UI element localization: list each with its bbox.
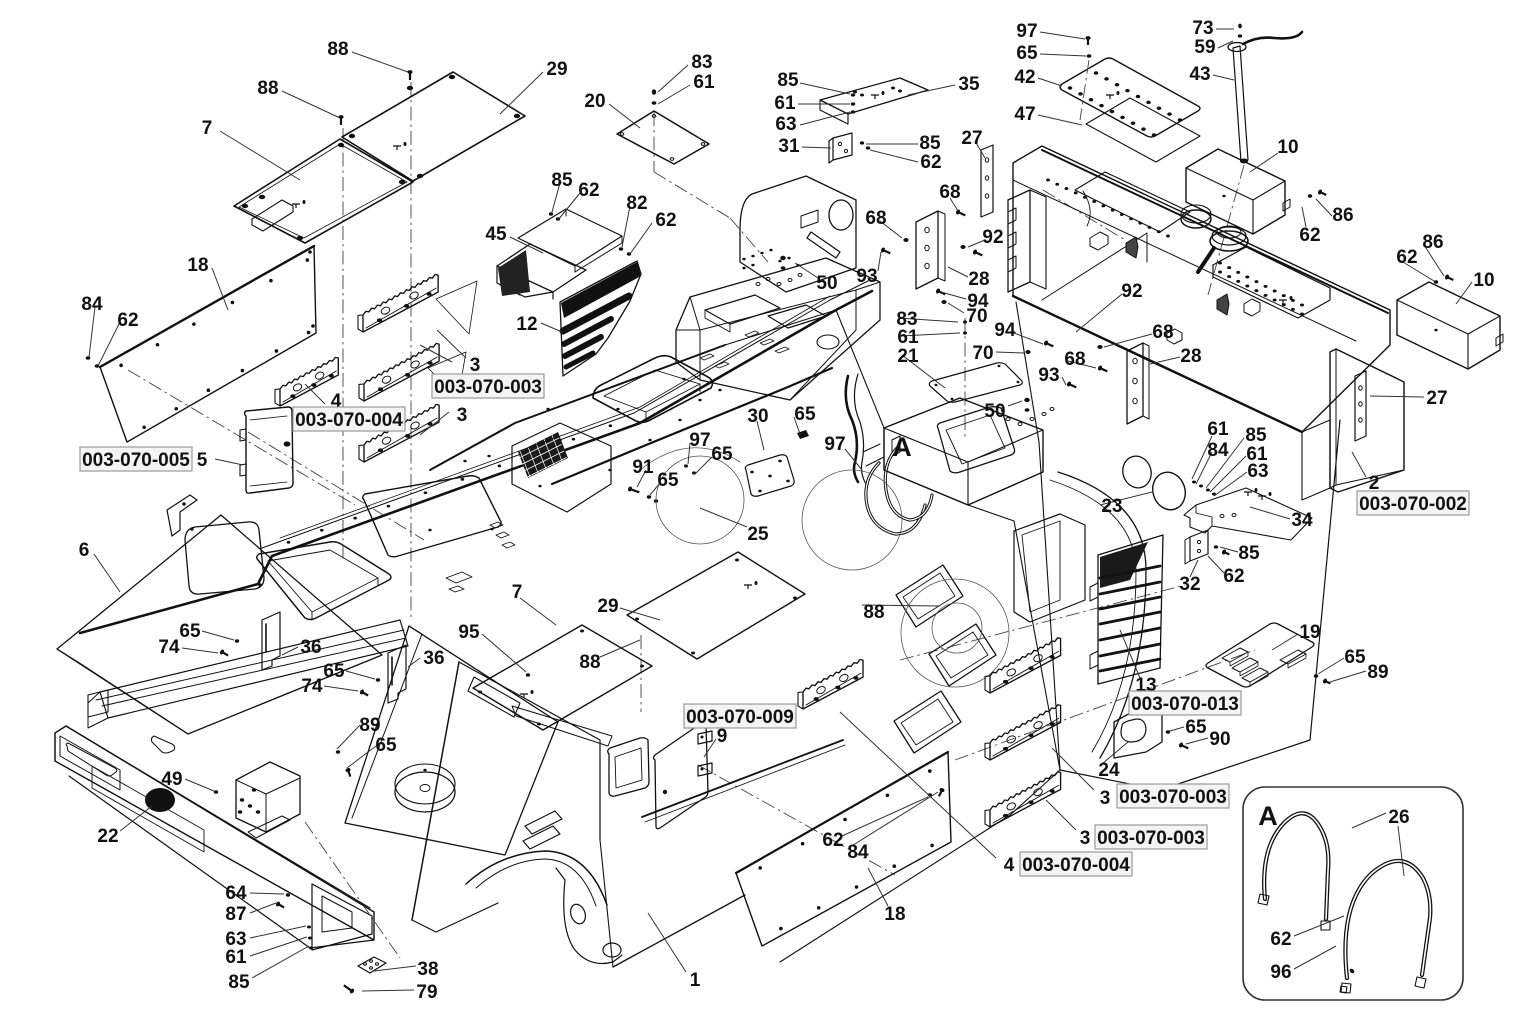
svg-text:62: 62: [920, 152, 941, 173]
svg-text:97: 97: [824, 434, 845, 455]
svg-text:68: 68: [939, 182, 960, 203]
svg-text:30: 30: [747, 406, 768, 427]
svg-text:85: 85: [1238, 543, 1260, 564]
svg-text:27: 27: [961, 128, 982, 149]
svg-text:28: 28: [1180, 346, 1201, 367]
svg-text:7: 7: [202, 118, 213, 139]
svg-text:68: 68: [1152, 322, 1173, 343]
svg-text:1: 1: [690, 970, 701, 991]
svg-text:50: 50: [816, 273, 837, 294]
svg-text:70: 70: [972, 343, 993, 364]
svg-text:6: 6: [79, 540, 90, 561]
svg-text:003-070-009: 003-070-009: [686, 707, 794, 728]
svg-text:74: 74: [158, 637, 180, 658]
svg-text:A: A: [892, 432, 912, 462]
svg-text:65: 65: [1185, 717, 1207, 738]
svg-text:63: 63: [1247, 461, 1268, 482]
svg-text:62: 62: [1299, 225, 1320, 246]
svg-text:62: 62: [1396, 247, 1417, 268]
svg-text:62: 62: [655, 210, 676, 231]
svg-text:18: 18: [884, 904, 905, 925]
svg-text:64: 64: [225, 883, 247, 904]
svg-text:89: 89: [1367, 662, 1388, 683]
svg-text:59: 59: [1194, 37, 1215, 58]
svg-text:3: 3: [457, 405, 468, 426]
svg-text:29: 29: [597, 596, 618, 617]
svg-text:85: 85: [777, 70, 799, 91]
svg-text:85: 85: [551, 170, 573, 191]
svg-text:61: 61: [1207, 419, 1229, 440]
svg-text:19: 19: [1299, 622, 1320, 643]
svg-text:003-070-003: 003-070-003: [1119, 787, 1227, 808]
svg-text:85: 85: [1245, 425, 1267, 446]
svg-text:61: 61: [897, 327, 919, 348]
svg-text:88: 88: [579, 652, 600, 673]
svg-text:62: 62: [1270, 929, 1291, 950]
svg-text:003-070-005: 003-070-005: [82, 450, 190, 471]
svg-text:27: 27: [1426, 388, 1447, 409]
svg-text:65: 65: [711, 444, 733, 465]
svg-text:93: 93: [1038, 365, 1059, 386]
svg-text:20: 20: [584, 91, 605, 112]
svg-text:003-070-004: 003-070-004: [295, 410, 403, 431]
svg-text:65: 65: [794, 404, 816, 425]
svg-text:84: 84: [847, 842, 869, 863]
svg-text:3: 3: [1100, 788, 1111, 809]
svg-text:10: 10: [1473, 270, 1494, 291]
svg-text:88: 88: [863, 602, 884, 623]
svg-text:42: 42: [1014, 67, 1035, 88]
svg-text:68: 68: [1064, 349, 1085, 370]
svg-text:5: 5: [197, 450, 208, 471]
svg-text:36: 36: [300, 637, 321, 658]
svg-text:97: 97: [1016, 21, 1037, 42]
svg-text:62: 62: [578, 180, 599, 201]
svg-text:62: 62: [822, 830, 843, 851]
svg-text:47: 47: [1014, 104, 1035, 125]
svg-text:45: 45: [485, 224, 507, 245]
svg-text:93: 93: [856, 266, 877, 287]
svg-text:003-070-004: 003-070-004: [1022, 855, 1130, 876]
svg-text:61: 61: [225, 947, 247, 968]
svg-text:4: 4: [1004, 855, 1015, 876]
svg-text:31: 31: [778, 136, 800, 157]
svg-text:65: 65: [1016, 43, 1038, 64]
svg-text:28: 28: [968, 269, 989, 290]
svg-text:35: 35: [958, 74, 980, 95]
svg-text:A: A: [1258, 801, 1278, 831]
svg-text:3: 3: [470, 355, 481, 376]
svg-text:003-070-003: 003-070-003: [434, 377, 542, 398]
svg-text:74: 74: [301, 676, 323, 697]
svg-text:79: 79: [416, 982, 437, 1003]
svg-text:92: 92: [1121, 281, 1142, 302]
svg-text:83: 83: [691, 52, 712, 73]
svg-text:85: 85: [228, 972, 250, 993]
svg-text:10: 10: [1277, 137, 1298, 158]
svg-text:84: 84: [81, 294, 103, 315]
svg-text:84: 84: [1207, 440, 1229, 461]
svg-text:96: 96: [1270, 962, 1291, 983]
svg-text:90: 90: [1209, 729, 1230, 750]
svg-text:23: 23: [1101, 496, 1122, 517]
svg-text:65: 65: [323, 661, 345, 682]
svg-text:87: 87: [225, 904, 246, 925]
svg-text:65: 65: [657, 470, 679, 491]
svg-text:86: 86: [1332, 205, 1353, 226]
svg-text:26: 26: [1388, 807, 1409, 828]
svg-text:21: 21: [897, 346, 919, 367]
svg-text:12: 12: [516, 314, 537, 335]
svg-text:43: 43: [1189, 64, 1210, 85]
svg-text:91: 91: [632, 457, 654, 478]
svg-text:49: 49: [161, 769, 182, 790]
svg-text:50: 50: [984, 401, 1005, 422]
svg-text:61: 61: [774, 93, 796, 114]
svg-text:70: 70: [966, 306, 987, 327]
svg-text:63: 63: [775, 114, 796, 135]
svg-text:7: 7: [512, 582, 523, 603]
svg-text:68: 68: [865, 208, 886, 229]
svg-text:73: 73: [1192, 18, 1213, 39]
svg-text:003-070-002: 003-070-002: [1359, 494, 1467, 515]
svg-text:95: 95: [458, 622, 480, 643]
svg-text:86: 86: [1422, 232, 1443, 253]
svg-text:62: 62: [117, 310, 138, 331]
svg-text:65: 65: [375, 735, 397, 756]
svg-text:82: 82: [626, 193, 647, 214]
svg-text:88: 88: [327, 39, 348, 60]
svg-text:62: 62: [1223, 566, 1244, 587]
svg-text:34: 34: [1291, 510, 1313, 531]
svg-text:9: 9: [717, 726, 728, 747]
svg-text:003-070-003: 003-070-003: [1097, 828, 1205, 849]
svg-text:003-070-013: 003-070-013: [1131, 694, 1239, 715]
svg-text:85: 85: [919, 133, 941, 154]
svg-text:25: 25: [747, 524, 769, 545]
svg-text:32: 32: [1179, 574, 1200, 595]
svg-text:88: 88: [257, 78, 278, 99]
svg-text:89: 89: [359, 715, 380, 736]
svg-text:97: 97: [689, 430, 710, 451]
svg-text:29: 29: [546, 59, 567, 80]
svg-text:3: 3: [1080, 828, 1091, 849]
svg-text:38: 38: [417, 959, 438, 980]
svg-text:92: 92: [982, 227, 1003, 248]
svg-text:61: 61: [693, 72, 715, 93]
svg-text:65: 65: [179, 621, 201, 642]
svg-text:65: 65: [1344, 647, 1366, 668]
svg-text:24: 24: [1098, 760, 1120, 781]
svg-text:18: 18: [187, 255, 208, 276]
svg-text:94: 94: [994, 320, 1016, 341]
svg-text:22: 22: [97, 826, 118, 847]
svg-text:36: 36: [423, 648, 444, 669]
